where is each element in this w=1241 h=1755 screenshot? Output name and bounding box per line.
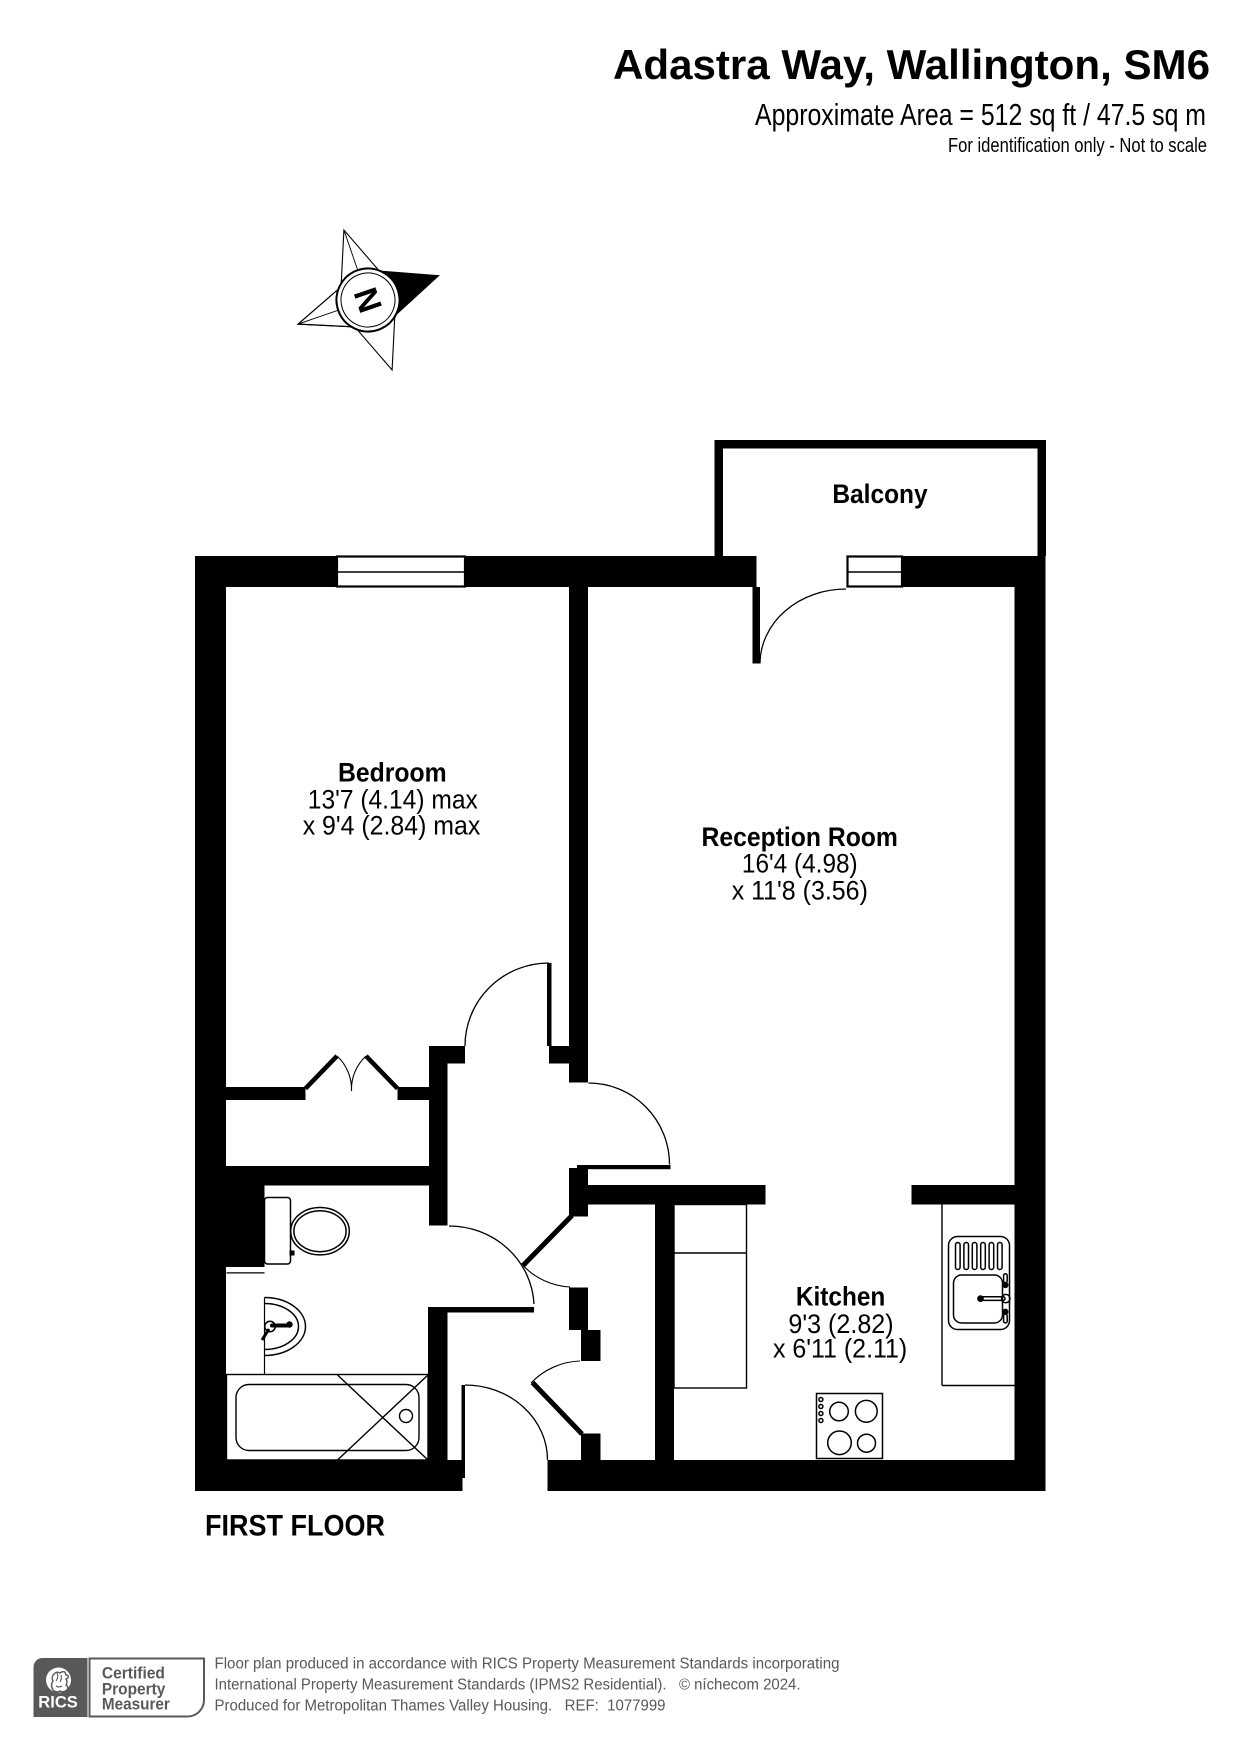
svg-text:RICS: RICS: [38, 1692, 78, 1711]
svg-text:Measurer: Measurer: [102, 1696, 171, 1714]
svg-text:Approximate Area = 512 sq ft /: Approximate Area = 512 sq ft / 47.5 sq m: [755, 97, 1206, 132]
svg-text:For identification only - Not: For identification only - Not to scale: [948, 134, 1207, 157]
svg-text:x 11'8 (3.56): x 11'8 (3.56): [732, 876, 868, 906]
svg-text:16'4 (4.98): 16'4 (4.98): [742, 849, 858, 879]
svg-text:x 6'11 (2.11): x 6'11 (2.11): [773, 1334, 907, 1364]
svg-text:International Property Measure: International Property Measurement Stand…: [215, 1677, 801, 1694]
svg-text:x 9'4 (2.84) max: x 9'4 (2.84) max: [303, 811, 481, 841]
svg-text:Kitchen: Kitchen: [796, 1282, 885, 1312]
svg-text:Adastra Way, Wallington, SM6: Adastra Way, Wallington, SM6: [613, 41, 1210, 88]
svg-text:FIRST FLOOR: FIRST FLOOR: [205, 1510, 385, 1543]
svg-text:Floor plan produced in accorda: Floor plan produced in accordance with R…: [215, 1656, 840, 1673]
svg-text:Reception Room: Reception Room: [702, 822, 898, 852]
svg-text:Bedroom: Bedroom: [338, 757, 447, 787]
svg-text:Produced for Metropolitan Tham: Produced for Metropolitan Thames Valley …: [215, 1698, 666, 1715]
svg-text:Balcony: Balcony: [832, 479, 928, 509]
